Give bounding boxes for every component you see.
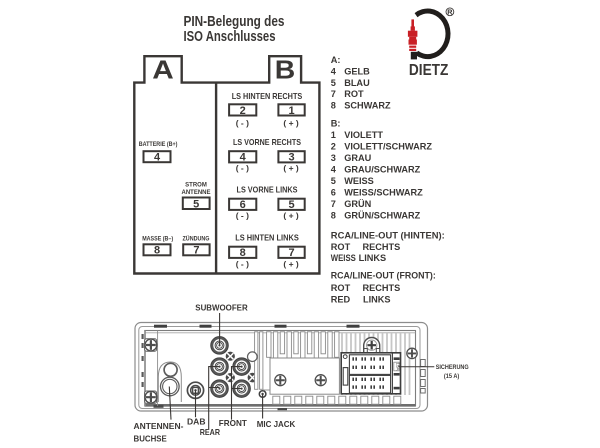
svg-text:LINKS: LINKS	[359, 253, 387, 263]
svg-text:8: 8	[240, 247, 246, 259]
svg-text:4: 4	[331, 165, 337, 175]
svg-text:ROT: ROT	[331, 242, 351, 252]
svg-text:(15 A): (15 A)	[444, 373, 459, 380]
svg-text:7: 7	[193, 245, 199, 257]
svg-text:GELB: GELB	[344, 66, 370, 76]
svg-text:MIC JACK: MIC JACK	[257, 419, 296, 429]
svg-text:WEISS/SCHWARZ: WEISS/SCHWARZ	[344, 188, 423, 198]
svg-text:4: 4	[331, 66, 337, 76]
svg-text:RED: RED	[331, 294, 351, 304]
svg-text:( + ): ( + )	[283, 118, 299, 128]
svg-text:GRÜN/SCHWARZ: GRÜN/SCHWARZ	[344, 211, 420, 221]
svg-text:SICHERUNG: SICHERUNG	[436, 364, 469, 371]
svg-text:5: 5	[331, 176, 336, 186]
svg-text:R: R	[447, 7, 453, 16]
svg-text:ISO Anschlusses: ISO Anschlusses	[184, 29, 276, 45]
svg-text:3: 3	[288, 152, 294, 164]
svg-text:( - ): ( - )	[236, 259, 249, 269]
svg-text:B: B	[275, 55, 296, 85]
svg-text:5: 5	[288, 199, 294, 211]
svg-text:ANTENNE: ANTENNE	[181, 190, 210, 196]
svg-text:4: 4	[154, 152, 161, 164]
svg-text:1: 1	[288, 105, 294, 117]
svg-text:LINKS: LINKS	[363, 294, 391, 304]
svg-text:7: 7	[331, 89, 336, 99]
svg-text:FRONT: FRONT	[219, 418, 248, 428]
svg-text:3: 3	[331, 153, 336, 163]
svg-text:4: 4	[240, 152, 247, 164]
svg-text:DIETZ: DIETZ	[409, 62, 449, 79]
svg-text:7: 7	[288, 247, 294, 259]
svg-text:8: 8	[331, 101, 336, 111]
svg-text:LS HINTEN RECHTS: LS HINTEN RECHTS	[232, 91, 303, 101]
svg-text:ROT: ROT	[344, 89, 364, 99]
svg-text:5: 5	[331, 78, 336, 88]
svg-text:ANTENNEN-: ANTENNEN-	[134, 421, 184, 431]
svg-text:LS VORNE LINKS: LS VORNE LINKS	[237, 185, 298, 195]
svg-text:B:: B:	[331, 119, 341, 129]
svg-text:8: 8	[331, 211, 336, 221]
svg-text:WEISS: WEISS	[331, 253, 356, 263]
svg-text:8: 8	[154, 245, 160, 257]
svg-text:BLAU: BLAU	[344, 78, 370, 88]
svg-text:RECHTS: RECHTS	[363, 283, 401, 293]
svg-text:A: A	[152, 55, 174, 85]
svg-text:RECHTS: RECHTS	[363, 242, 401, 252]
svg-text:REAR: REAR	[200, 427, 220, 437]
svg-text:PIN-Belegung des: PIN-Belegung des	[184, 14, 285, 30]
svg-text:BUCHSE: BUCHSE	[134, 433, 168, 443]
svg-text:RCA/LINE-OUT (FRONT):: RCA/LINE-OUT (FRONT):	[331, 270, 436, 280]
svg-text:2: 2	[240, 105, 246, 117]
svg-text:( + ): ( + )	[283, 211, 299, 221]
svg-text:6: 6	[331, 188, 336, 198]
svg-text:VIOLETT: VIOLETT	[344, 130, 383, 140]
svg-text:( - ): ( - )	[236, 163, 249, 173]
svg-text:WEISS: WEISS	[344, 176, 374, 186]
svg-text:( + ): ( + )	[283, 163, 299, 173]
svg-text:ZÜNDUNG: ZÜNDUNG	[183, 236, 210, 243]
svg-text:( - ): ( - )	[236, 118, 249, 128]
svg-text:5: 5	[193, 198, 199, 210]
svg-text:A:: A:	[331, 55, 341, 65]
svg-text:GRAU: GRAU	[344, 153, 371, 163]
svg-text:6: 6	[240, 199, 246, 211]
svg-text:DAB: DAB	[187, 416, 206, 426]
svg-text:ROT: ROT	[331, 283, 351, 293]
svg-text:( - ): ( - )	[236, 211, 249, 221]
svg-text:( + ): ( + )	[283, 259, 299, 269]
svg-text:1: 1	[331, 130, 336, 140]
svg-text:STROM: STROM	[185, 183, 207, 189]
svg-text:2: 2	[331, 142, 336, 152]
svg-text:SCHWARZ: SCHWARZ	[344, 101, 391, 111]
svg-text:VIOLETT/SCHWARZ: VIOLETT/SCHWARZ	[344, 142, 432, 152]
svg-text:BATTERIE (B+): BATTERIE (B+)	[139, 142, 178, 148]
svg-text:GRAU/SCHWARZ: GRAU/SCHWARZ	[344, 165, 420, 175]
svg-text:LS HINTEN LINKS: LS HINTEN LINKS	[235, 233, 299, 243]
svg-text:SUBWOOFER: SUBWOOFER	[195, 303, 247, 313]
svg-text:LS VORNE RECHTS: LS VORNE RECHTS	[233, 137, 301, 147]
svg-text:GRÜN: GRÜN	[344, 199, 371, 209]
svg-text:RCA/LINE-OUT (HINTEN):: RCA/LINE-OUT (HINTEN):	[331, 230, 445, 240]
svg-text:7: 7	[331, 199, 336, 209]
svg-text:MASSE (B–): MASSE (B–)	[142, 237, 173, 243]
